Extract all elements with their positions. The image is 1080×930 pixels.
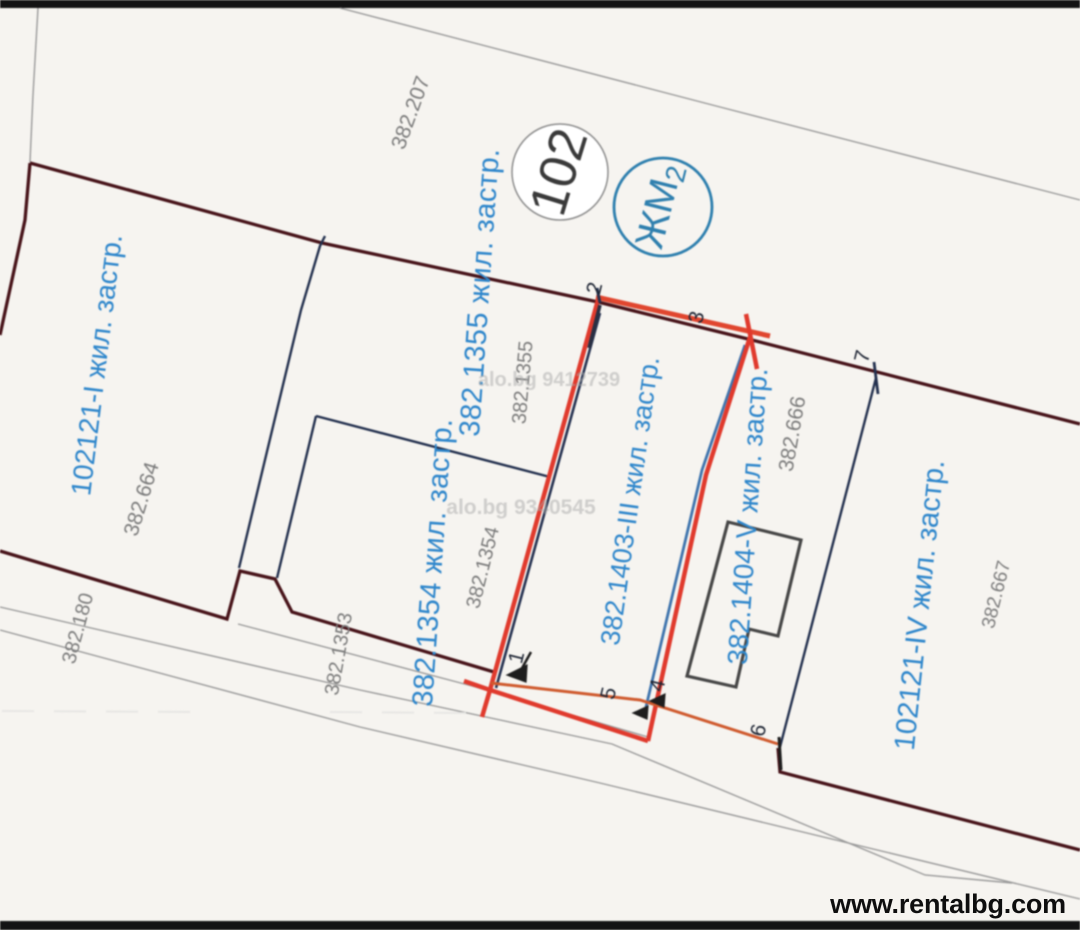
svg-text:www.rentalbg.com: www.rentalbg.com xyxy=(829,889,1066,919)
svg-text:alo.bg 9412739: alo.bg 9412739 xyxy=(478,369,620,391)
svg-text:alo.bg 9340545: alo.bg 9340545 xyxy=(446,496,596,519)
